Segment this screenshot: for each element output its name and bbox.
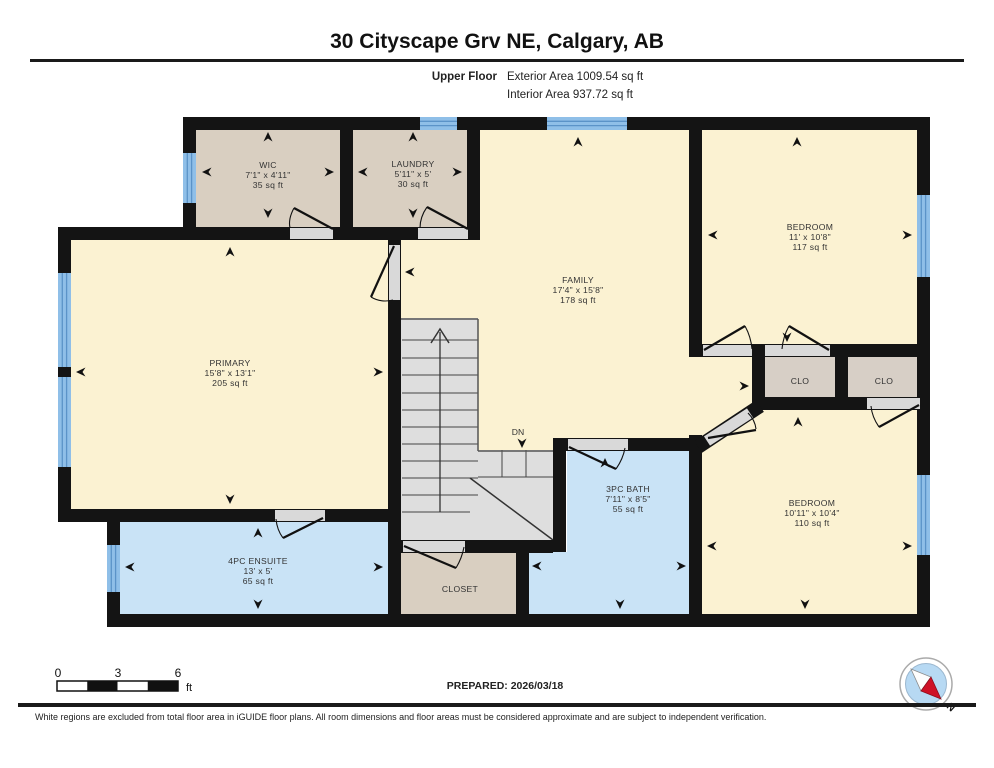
- prepared-date: PREPARED: 2026/03/18: [447, 680, 564, 692]
- room-area-bedroom2: 110 sq ft: [794, 518, 829, 528]
- wall: [388, 522, 401, 614]
- header-divider: [30, 59, 964, 62]
- floor-label: Upper Floor: [432, 71, 498, 83]
- room-area-ensuite: 65 sq ft: [243, 576, 274, 586]
- wall: [467, 130, 480, 240]
- floor-plan: 30 Cityscape Grv NE, Calgary, AB Upper F…: [0, 0, 994, 768]
- window-icon: [58, 377, 71, 467]
- window-icon: [547, 117, 627, 130]
- room-area-wic: 35 sq ft: [253, 180, 284, 190]
- room-area-bedroom1: 117 sq ft: [792, 242, 827, 252]
- room-dims-ensuite: 13' x 5': [243, 566, 272, 576]
- wall: [58, 227, 480, 240]
- wall: [553, 438, 566, 552]
- window-icon: [420, 117, 457, 130]
- wall: [340, 130, 353, 240]
- window-icon: [917, 475, 930, 555]
- room-label-bath: 3PC BATH: [606, 484, 650, 494]
- room-label-closet: CLOSET: [442, 584, 479, 594]
- window-icon: [107, 545, 120, 592]
- door-opening: [290, 228, 333, 239]
- wall: [689, 117, 702, 357]
- room-label-primary: PRIMARY: [209, 358, 250, 368]
- room-floor: [529, 552, 689, 614]
- room-dims-wic: 7'1" x 4'11": [245, 170, 290, 180]
- wall: [516, 552, 529, 614]
- room-floor: [478, 450, 553, 540]
- window-icon: [58, 273, 71, 367]
- interior-area-label: Interior Area 937.72 sq ft: [507, 89, 634, 101]
- scale-tick-0: 0: [55, 666, 62, 680]
- door-opening: [568, 439, 628, 450]
- room-area-laundry: 30 sq ft: [398, 179, 429, 189]
- door-opening: [418, 228, 468, 239]
- scale-unit: ft: [186, 682, 192, 694]
- room-label-bedroom2: BEDROOM: [789, 498, 836, 508]
- room-dims-bedroom2: 10'11" x 10'4": [784, 508, 839, 518]
- room-label-wic: WIC: [259, 160, 277, 170]
- scale-tick-3: 3: [115, 666, 122, 680]
- disclaimer-text: White regions are excluded from total fl…: [35, 712, 766, 722]
- wall: [107, 614, 930, 627]
- room-dims-laundry: 5'11" x 5': [395, 169, 432, 179]
- plan-drawing: WIC7'1" x 4'11"35 sq ftLAUNDRY5'11" x 5'…: [58, 117, 930, 627]
- scale-bar: 0 3 6 ft: [55, 666, 192, 694]
- door-opening: [275, 510, 325, 521]
- room-floor: [401, 552, 516, 614]
- footer-divider: [18, 703, 976, 707]
- room-label-laundry: LAUNDRY: [391, 159, 434, 169]
- door-opening: [867, 398, 920, 409]
- room-area-bath: 55 sq ft: [613, 504, 644, 514]
- exterior-area-label: Exterior Area 1009.54 sq ft: [507, 71, 644, 83]
- window-icon: [917, 195, 930, 277]
- wall: [689, 435, 702, 627]
- floorplan-page: 30 Cityscape Grv NE, Calgary, AB Upper F…: [0, 0, 994, 768]
- door-opening: [765, 345, 830, 356]
- room-label-ensuite: 4PC ENSUITE: [228, 556, 288, 566]
- room-dims-bedroom1: 11' x 10'8": [789, 232, 831, 242]
- room-label-bedroom1: BEDROOM: [787, 222, 834, 232]
- room-label-family: FAMILY: [562, 275, 594, 285]
- room-label-clo2: CLO: [875, 376, 894, 386]
- room-dims-primary: 15'8" x 13'1": [204, 368, 255, 378]
- scale-bar-segment: [87, 681, 117, 691]
- room-dims-bath: 7'11" x 8'5": [605, 494, 650, 504]
- room-area-primary: 205 sq ft: [212, 378, 248, 388]
- page-title: 30 Cityscape Grv NE, Calgary, AB: [330, 30, 664, 53]
- room-area-family: 178 sq ft: [560, 295, 596, 305]
- scale-bar-segment: [148, 681, 178, 691]
- room-label-clo1: CLO: [791, 376, 810, 386]
- stairs-down-label: DN: [512, 427, 524, 437]
- window-icon: [183, 153, 196, 203]
- room-dims-family: 17'4" x 15'8": [552, 285, 603, 295]
- scale-tick-6: 6: [175, 666, 182, 680]
